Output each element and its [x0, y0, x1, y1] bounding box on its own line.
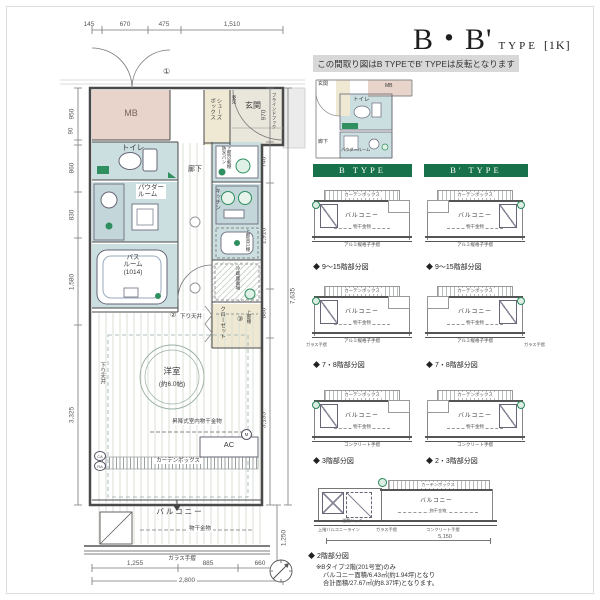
b-balcony-diagram-2f: 避難ハッチ カーテンボックス バルコニー 物干金物 上階バルコニーライン ガラス… — [318, 478, 493, 544]
dim-top-670: 670 — [120, 21, 131, 28]
dim-left-950: 950 — [68, 109, 75, 120]
balcony-label: バルコニー — [425, 306, 525, 315]
bp-balcony-diagram-2-3f: カーテンボックス バルコニー 物干金物 コンクリート手摺 — [425, 390, 525, 456]
marker-ca: CA — [94, 451, 106, 461]
curtain-box-label: カーテンボックス — [455, 288, 495, 294]
drying-fixture-label: 物干金物 — [187, 526, 213, 532]
b-balcony-diagram-7-8f: カーテンボックス バルコニー 物干金物 アルミ縦格子手摺 — [312, 286, 412, 352]
drying-fixture-label: 物干金物 — [352, 424, 372, 430]
curtain-box-label: カーテンボックス — [455, 392, 495, 398]
railing-label: アルミ縦格子手摺 — [312, 242, 412, 248]
note-line-3: 合計面積/27.67㎡(約8.37坪)となります。 — [323, 578, 438, 587]
kitchen-label: キッチン — [214, 188, 220, 210]
west-room-size-label: (約6.0帖) — [159, 381, 185, 388]
inset-entrance-label: 玄関 — [318, 82, 328, 88]
dim-right-1910: 1,910 — [260, 228, 267, 244]
shoes-box-label: シューズ ボックス — [209, 98, 221, 120]
lowered-ceiling-left-label: 下り天井 — [99, 362, 105, 384]
curtain-box-label: カーテンボックス — [419, 482, 456, 488]
corridor-label: 廊下 — [188, 166, 202, 174]
dim-right-740: 740 — [260, 157, 267, 168]
lowered-ceiling-label: 下り天井 — [180, 314, 202, 320]
vent-icon — [312, 401, 320, 409]
drying-fixture-label: 物干金物 — [430, 508, 447, 514]
dim-left-860: 860 — [68, 163, 75, 174]
caption-bp-7-8f: ◆ 7・8階部分図 — [426, 360, 478, 370]
railing-label: アルミ縦格子手摺 — [312, 338, 412, 344]
upper-shelf-label: 上部棚 — [247, 310, 252, 324]
balcony-label: バルコニー — [312, 306, 412, 315]
hanging-cupboard-label: 上部吊戸棚 — [246, 229, 251, 252]
dim-bottom-885: 885 — [203, 560, 214, 567]
vent-icon — [517, 297, 525, 305]
dim-top-475: 475 — [159, 21, 170, 28]
caption-b-2f: ◆ 2階部分図 — [308, 551, 349, 561]
dim-right-3135: 3,135 — [260, 412, 267, 428]
marker-1: ① — [163, 68, 170, 77]
drying-fixture-label: 物干金物 — [465, 224, 485, 230]
railing-label: コンクリート手摺 — [312, 442, 412, 448]
vent-icon — [517, 201, 525, 209]
west-room-label: 洋室 — [163, 367, 180, 377]
dim-balcony-depth: 1,250 — [280, 530, 287, 546]
balcony-label: バルコニー — [425, 210, 525, 219]
b-balcony-diagram-9-15f: カーテンボックス バルコニー 物干金物 アルミ縦格子手摺 — [312, 190, 412, 256]
caption-bp-9-15f: ◆ 9〜15階部分図 — [426, 262, 482, 272]
concrete-railing-label: コンクリート手摺 — [426, 527, 460, 533]
marker-2: ② — [170, 312, 176, 320]
unit-type-title: B・B' TYPE [1K] — [413, 14, 571, 58]
dim-top-1510: 1,510 — [224, 21, 240, 28]
dim-right-880: 880 — [260, 308, 267, 319]
blind-hook-label: ブラインドフック — [272, 93, 277, 129]
laundry-shelf-label: 上部可動棚 防水パン — [222, 146, 232, 169]
curtain-box-label: カーテンボックス — [154, 458, 202, 464]
dim-left-90: 90 — [69, 128, 76, 135]
upper-balcony-line-label: 上階バルコニーライン — [318, 527, 360, 533]
inset-powder-label: パウダールーム — [341, 148, 370, 153]
curtain-box-label: カーテンボックス — [455, 192, 495, 198]
inset-toilet-label: トイレ — [353, 97, 370, 103]
vent-icon — [312, 297, 320, 305]
marker-m: M — [241, 429, 252, 440]
bp-balcony-diagram-9-15f: カーテンボックス バルコニー 物干金物 アルミ縦格子手摺 — [425, 190, 525, 256]
railing-label: アルミ縦格子手摺 — [425, 242, 525, 248]
hatch-square — [322, 492, 344, 514]
balcony-label: バルコニー — [425, 410, 525, 419]
curtain-box-label: カーテンボックス — [342, 192, 382, 198]
caption-bp-2-3f: ◆ 2・3階部分図 — [426, 456, 478, 466]
curtain-box-label: カーテンボックス — [342, 392, 382, 398]
inset-mb-label: MB — [385, 84, 393, 90]
mb-label: MB — [124, 108, 138, 118]
mirror-label: 姿見 — [232, 95, 237, 104]
balcony-label: バルコニー — [312, 210, 412, 219]
glass-railing-label: ガラス手摺 — [376, 527, 397, 533]
inset-corridor-label: 廊下 — [318, 140, 328, 146]
compass — [270, 560, 292, 582]
b-type-header: B TYPE — [313, 164, 412, 177]
dim-bottom-total: 2,800 — [177, 577, 197, 584]
width-dimension-line — [326, 540, 491, 541]
drying-fixture-label: 物干金物 — [352, 320, 372, 326]
slab-line — [314, 520, 497, 526]
vent-icon — [517, 401, 525, 409]
drying-fixture-label: 物干金物 — [352, 224, 372, 230]
floorplan-sheet: MB シューズ ボックス 玄関 姿見 ブラインドフック トイレ パウダー ルーム… — [0, 0, 600, 600]
b-prime-type-header: B' TYPE — [424, 164, 528, 177]
balcony-edge — [492, 489, 493, 520]
drying-unit-label: 昇降式室内物干金物 — [170, 419, 224, 425]
caption-b-7-8f: ◆ 7・8階部分図 — [313, 360, 365, 370]
drying-fixture-label: 物干金物 — [465, 320, 485, 326]
marker-3: ③ — [237, 316, 243, 324]
fridge-space-label: 冷蔵庫置場 — [234, 266, 239, 290]
vent-icon — [378, 478, 387, 487]
powder-room-label: パウダー ルーム — [136, 184, 166, 199]
dim-top-145: 145 — [84, 21, 95, 28]
bp-balcony-diagram-7-8f: カーテンボックス バルコニー 物干金物 アルミ縦格子手摺 — [425, 286, 525, 352]
mirror-notice-banner: この間取り図はB TYPEでB' TYPEは反転となります — [313, 55, 519, 72]
dim-bottom-1255: 1,255 — [127, 560, 143, 567]
dim-left-3325: 3,325 — [68, 407, 75, 423]
marker-ra: RA — [94, 461, 106, 471]
title-type: TYPE — [498, 40, 538, 52]
title-main: B・B' — [413, 14, 492, 58]
railing-label: アルミ縦格子手摺 — [425, 338, 525, 344]
caption-b-3f: ◆ 3階部分図 — [313, 456, 354, 466]
corner-note-bp-7-8f: ガラス手摺 — [524, 342, 545, 348]
balcony-label: バルコニー — [156, 508, 203, 516]
wall-line — [380, 489, 493, 491]
width-dimension-label: 5,150 — [436, 534, 454, 540]
corner-note-b-7-8f: ガラス手摺 — [306, 342, 327, 348]
dim-bottom-660: 660 — [255, 560, 266, 567]
b-balcony-diagram-3f: カーテンボックス バルコニー 物干金物 コンクリート手摺 — [312, 390, 412, 456]
caption-b-9-15f: ◆ 9〜15階部分図 — [313, 262, 369, 272]
vent-icon — [312, 201, 320, 209]
balcony-label: バルコニー — [380, 496, 493, 504]
glass-railing-label: ガラス手摺 — [168, 556, 195, 562]
bath-room-label: バス ルーム (1014) — [123, 254, 142, 276]
ac-label: AC — [224, 441, 234, 449]
entrance-label: 玄関 — [245, 102, 261, 111]
balcony-label: バルコニー — [312, 410, 412, 419]
railing-label: コンクリート手摺 — [425, 442, 525, 448]
dim-right-total: 7,635 — [289, 288, 296, 304]
dim-left-1580: 1,580 — [68, 274, 75, 290]
escape-hatch — [346, 492, 372, 518]
title-size: [1K] — [544, 38, 571, 53]
curtain-box-label: カーテンボックス — [342, 288, 382, 294]
dim-left-830: 830 — [68, 210, 75, 221]
dim-right-970: 970 — [260, 110, 267, 121]
toilet-label: トイレ — [122, 144, 145, 152]
drying-fixture-label: 物干金物 — [465, 424, 485, 430]
closet-label: クローゼット — [219, 306, 225, 339]
